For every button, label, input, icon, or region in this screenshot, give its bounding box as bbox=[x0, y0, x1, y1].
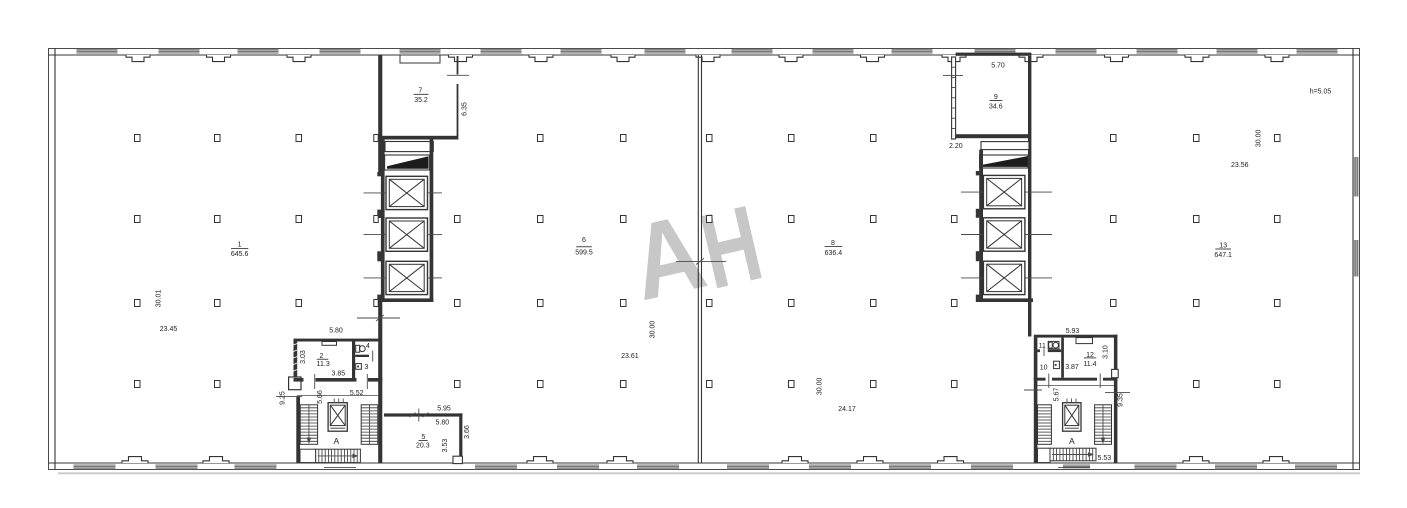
svg-text:3.66: 3.66 bbox=[464, 425, 471, 439]
svg-text:5.95: 5.95 bbox=[437, 406, 451, 413]
svg-text:5.67: 5.67 bbox=[1053, 388, 1060, 402]
svg-text:9: 9 bbox=[994, 94, 998, 101]
svg-text:636.4: 636.4 bbox=[825, 250, 843, 257]
svg-text:3.87: 3.87 bbox=[1065, 364, 1079, 371]
svg-text:9.35: 9.35 bbox=[1118, 393, 1125, 407]
svg-text:3.03: 3.03 bbox=[300, 350, 307, 364]
svg-text:5.93: 5.93 bbox=[1066, 328, 1080, 335]
svg-text:3.53: 3.53 bbox=[442, 439, 449, 453]
svg-text:7: 7 bbox=[418, 88, 422, 95]
svg-text:4: 4 bbox=[366, 343, 370, 350]
svg-text:30.00: 30.00 bbox=[649, 321, 656, 339]
svg-text:5.80: 5.80 bbox=[329, 327, 343, 334]
svg-text:11.4: 11.4 bbox=[1083, 361, 1096, 368]
svg-text:35.2: 35.2 bbox=[414, 97, 428, 104]
svg-text:9.25: 9.25 bbox=[280, 391, 287, 405]
svg-text:6.35: 6.35 bbox=[462, 102, 469, 116]
svg-text:1: 1 bbox=[238, 241, 242, 248]
svg-text:647.1: 647.1 bbox=[1214, 252, 1232, 259]
svg-text:23.45: 23.45 bbox=[160, 326, 178, 333]
svg-text:6: 6 bbox=[582, 237, 586, 244]
svg-text:3.10: 3.10 bbox=[1103, 345, 1110, 359]
svg-text:A: A bbox=[1069, 436, 1075, 446]
svg-text:34.6: 34.6 bbox=[989, 104, 1003, 111]
svg-text:645.6: 645.6 bbox=[231, 251, 249, 258]
svg-text:2: 2 bbox=[320, 353, 324, 360]
svg-text:2.20: 2.20 bbox=[949, 143, 963, 150]
svg-text:5.66: 5.66 bbox=[317, 390, 324, 404]
svg-text:5.70: 5.70 bbox=[991, 63, 1005, 70]
svg-text:8: 8 bbox=[831, 240, 835, 247]
svg-text:10: 10 bbox=[1040, 365, 1048, 372]
svg-text:5.53: 5.53 bbox=[1097, 455, 1111, 462]
svg-text:23.56: 23.56 bbox=[1231, 162, 1249, 169]
svg-text:23.61: 23.61 bbox=[621, 353, 639, 360]
svg-text:5.80: 5.80 bbox=[435, 420, 449, 427]
svg-text:599.5: 599.5 bbox=[575, 250, 593, 257]
svg-text:5: 5 bbox=[421, 434, 425, 441]
svg-text:11.3: 11.3 bbox=[317, 361, 330, 368]
svg-text:3: 3 bbox=[365, 364, 369, 371]
svg-text:30.00: 30.00 bbox=[1256, 130, 1263, 148]
svg-text:13: 13 bbox=[1219, 242, 1227, 249]
svg-text:20.3: 20.3 bbox=[416, 442, 430, 449]
svg-text:A: A bbox=[333, 436, 339, 446]
svg-text:5.52: 5.52 bbox=[350, 390, 364, 397]
svg-text:h=5.05: h=5.05 bbox=[1310, 89, 1332, 96]
svg-text:11: 11 bbox=[1039, 342, 1046, 349]
svg-text:30.00: 30.00 bbox=[817, 377, 824, 395]
svg-text:30.01: 30.01 bbox=[156, 290, 163, 308]
svg-text:24.17: 24.17 bbox=[838, 406, 856, 413]
svg-text:3.85: 3.85 bbox=[331, 370, 345, 377]
